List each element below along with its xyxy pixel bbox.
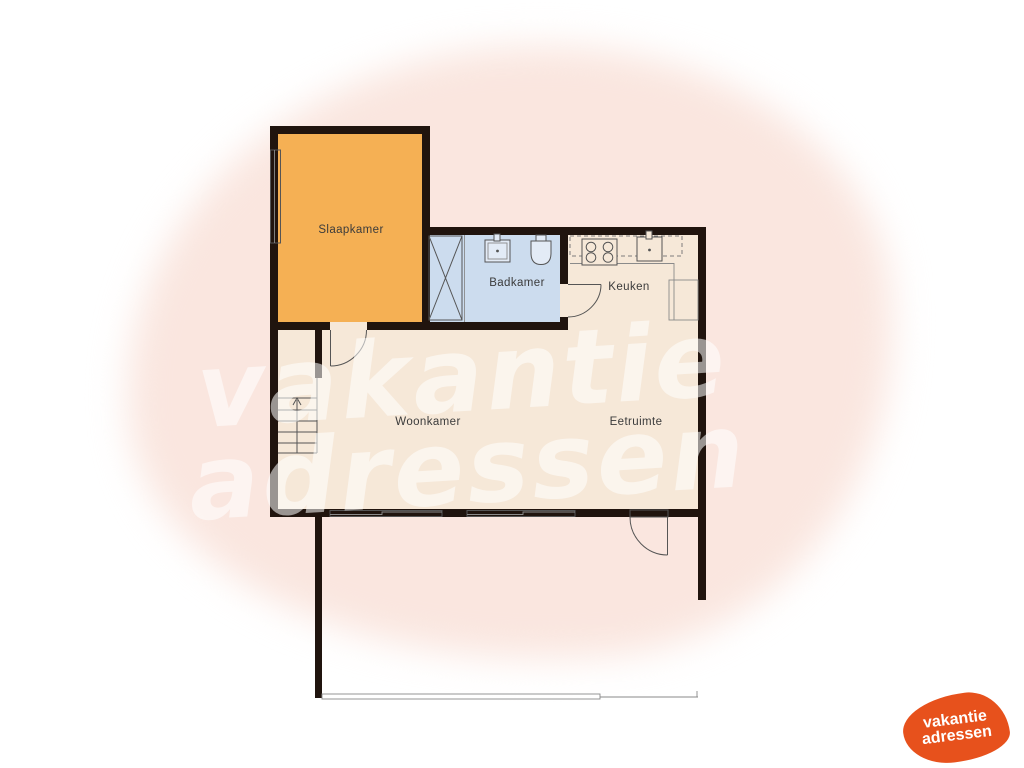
wall-terrace-left bbox=[315, 517, 322, 698]
door-swing-arc bbox=[630, 517, 668, 555]
exterior-door-eetruimte bbox=[630, 517, 668, 555]
wall-stair-stub bbox=[315, 330, 322, 378]
floorplan: Slaapkamer Badkamer Keuken Woonkamer Eet… bbox=[0, 0, 1024, 768]
wall-slaapkamer-top bbox=[270, 126, 430, 134]
wall-right-outer bbox=[698, 227, 706, 517]
wall-slaapkamer-badkamer-bottom bbox=[270, 322, 568, 330]
terrace-edge bbox=[322, 691, 698, 699]
terrace-edge-right bbox=[600, 691, 698, 697]
wall-terrace-right bbox=[698, 517, 706, 600]
stove-icon bbox=[582, 239, 617, 265]
terrace-edge-left bbox=[322, 694, 600, 699]
label-slaapkamer: Slaapkamer bbox=[318, 224, 383, 236]
label-woonkamer: Woonkamer bbox=[395, 416, 460, 428]
room-fills bbox=[278, 134, 698, 509]
label-keuken: Keuken bbox=[608, 281, 649, 293]
label-badkamer: Badkamer bbox=[489, 277, 545, 289]
logo-text: vakantie adressen bbox=[919, 708, 993, 749]
opening-slaapkamer-door bbox=[330, 322, 367, 330]
opening-badkamer-door bbox=[560, 284, 568, 317]
wall-left-outer bbox=[270, 126, 278, 517]
label-eetruimte: Eetruimte bbox=[610, 416, 663, 428]
